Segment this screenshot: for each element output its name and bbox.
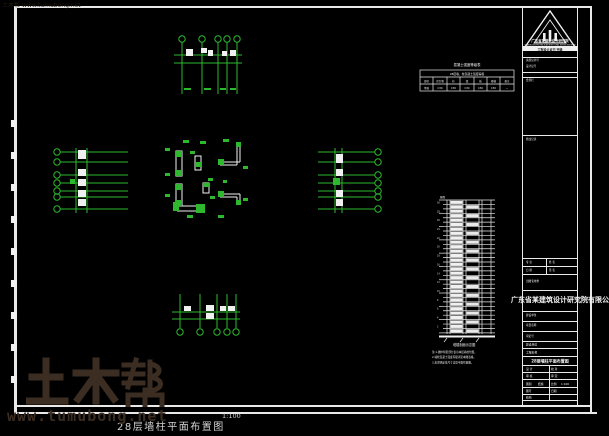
svg-text:资质证书号: 资质证书号 — [526, 58, 539, 62]
svg-text:8: 8 — [437, 299, 439, 302]
svg-text:22: 22 — [437, 237, 440, 240]
svg-text:混凝土强度等级表: 混凝土强度等级表 — [453, 62, 481, 67]
svg-text:工程设计证书 甲级: 工程设计证书 甲级 — [537, 46, 562, 51]
institute-stamp-text: 广东省某建筑设计研究院有限公司 — [511, 295, 609, 305]
svg-text:设 计: 设 计 — [526, 367, 533, 371]
svg-text:塔楼剖面示意图: 塔楼剖面示意图 — [453, 342, 475, 347]
svg-text:C30: C30 — [478, 86, 483, 90]
svg-text:30: 30 — [437, 201, 440, 204]
svg-text:10: 10 — [437, 290, 440, 293]
svg-text:14: 14 — [437, 272, 440, 275]
watermark-brand-tumubang — [26, 357, 168, 407]
svg-text:审 定: 审 定 — [551, 374, 558, 378]
svg-text:设计证号: 设计证号 — [526, 64, 537, 68]
svg-text:C30: C30 — [491, 86, 496, 90]
svg-text:3.未注明定位尺寸详见平面布置图。: 3.未注明定位尺寸详见平面布置图。 — [432, 360, 473, 364]
svg-text:楼梯: 楼梯 — [491, 79, 497, 83]
svg-text:24: 24 — [437, 228, 440, 231]
svg-text:剪力墙: 剪力墙 — [436, 79, 444, 83]
svg-text:签 名: 签 名 — [549, 268, 555, 272]
watermark-url: www.tumubong.net — [7, 407, 168, 425]
svg-text:部位: 部位 — [424, 79, 430, 83]
svg-text:日 期: 日 期 — [526, 268, 532, 272]
svg-text:20: 20 — [437, 246, 440, 249]
svg-text:C30: C30 — [451, 86, 456, 90]
svg-text:专 业: 专 业 — [526, 260, 532, 264]
svg-text:项目名称: 项目名称 — [526, 323, 537, 327]
svg-text:屋面: 屋面 — [440, 195, 446, 199]
svg-text:图别: 图别 — [526, 382, 532, 386]
svg-text:结构: 结构 — [526, 396, 532, 400]
svg-text:出图专用章: 出图专用章 — [526, 279, 539, 283]
svg-text:26: 26 — [437, 219, 440, 222]
svg-text:2: 2 — [437, 325, 439, 328]
svg-text:C30: C30 — [465, 86, 470, 90]
svg-text:板: 板 — [479, 79, 482, 83]
svg-text:1:100: 1:100 — [561, 382, 569, 386]
svg-text:18: 18 — [437, 255, 440, 258]
svg-text:等级: 等级 — [424, 86, 430, 90]
svg-text:注:1.图中阴影部分表示本层墙柱位置。: 注:1.图中阴影部分表示本层墙柱位置。 — [432, 350, 477, 354]
svg-text:日期: 日期 — [551, 389, 557, 393]
svg-text:比例: 比例 — [551, 382, 557, 386]
svg-text:审 核: 审 核 — [526, 374, 533, 378]
svg-text:广东省某建筑设计研究院: 广东省某建筑设计研究院 — [531, 38, 569, 43]
svg-text:图号: 图号 — [526, 389, 532, 393]
svg-text:16: 16 — [437, 263, 440, 266]
svg-text:备注: 备注 — [504, 79, 510, 83]
svg-text:28层墙柱平面布置图: 28层墙柱平面布置图 — [531, 358, 569, 364]
svg-text:建设单位: 建设单位 — [526, 343, 537, 347]
corner-watermark: 土木帮 www.tumubong.net — [2, 0, 81, 9]
svg-text:—: — — [506, 87, 509, 90]
svg-text:28层墙、柱混凝土强度等级: 28层墙、柱混凝土强度等级 — [450, 72, 485, 76]
svg-text:GUANGDONG PROVINCE ARCHITECTUR: GUANGDONG PROVINCE ARCHITECTURAL DESIGN … — [524, 43, 575, 46]
svg-text:结施: 结施 — [538, 382, 544, 386]
svg-text:4: 4 — [437, 317, 439, 320]
svg-text:6: 6 — [437, 308, 439, 311]
svg-text:28: 28 — [437, 210, 440, 213]
svg-text:会签栏: 会签栏 — [526, 78, 534, 82]
svg-text:2.墙柱混凝土强度等级详见本图表格。: 2.墙柱混凝土强度等级详见本图表格。 — [432, 355, 476, 359]
svg-text:柱: 柱 — [452, 79, 455, 83]
cad-sheet-screenshot: www.tumubong.net 土木帮 www.tumubong.net 广东… — [0, 0, 609, 436]
svg-text:C30: C30 — [438, 86, 443, 90]
svg-text:姓 名: 姓 名 — [549, 260, 555, 264]
svg-text:12: 12 — [437, 281, 440, 284]
svg-text:工程名称: 工程名称 — [526, 351, 537, 355]
svg-text:建设单位: 建设单位 — [526, 313, 537, 317]
svg-text:梁: 梁 — [466, 79, 469, 83]
svg-text:审定号: 审定号 — [526, 334, 534, 338]
svg-text:修改记录: 修改记录 — [526, 137, 537, 141]
svg-text:校 对: 校 对 — [551, 367, 558, 371]
